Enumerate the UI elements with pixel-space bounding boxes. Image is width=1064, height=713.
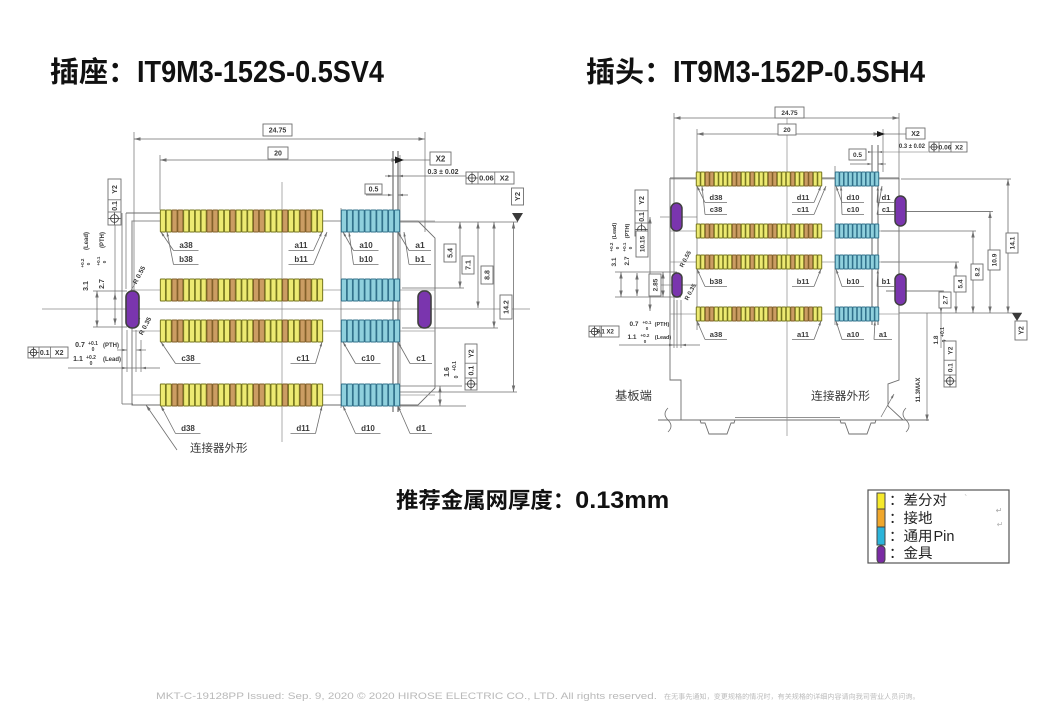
svg-text:0: 0 [454,375,460,378]
svg-text:11.3MAX: 11.3MAX [916,378,922,403]
svg-text:b11: b11 [797,277,810,286]
svg-text:(PTH): (PTH) [625,224,631,239]
svg-text:0.06: 0.06 [479,174,494,183]
svg-text:(PTH): (PTH) [655,322,670,328]
svg-text:b10: b10 [359,255,373,264]
svg-text:1.8: 1.8 [933,335,940,344]
svg-text:b10: b10 [847,277,860,286]
svg-text:R 0.35: R 0.35 [684,283,698,302]
svg-text:+0.2: +0.2 [641,333,650,338]
svg-text:0.1: 0.1 [947,363,954,372]
svg-text:10.15: 10.15 [639,235,646,252]
svg-text:0.1: 0.1 [112,201,119,211]
svg-text:0.5: 0.5 [369,187,379,194]
svg-text:+0.2: +0.2 [80,258,85,267]
svg-text:b1: b1 [882,277,891,286]
svg-text:X2: X2 [55,350,64,357]
svg-text:b1: b1 [415,254,425,264]
svg-text:0.1: 0.1 [597,330,606,336]
svg-text:X2: X2 [955,144,963,151]
svg-text:c1: c1 [416,353,426,363]
svg-text:c10: c10 [847,205,860,214]
svg-text:a38: a38 [710,330,723,339]
svg-text:(Lead): (Lead) [84,232,90,250]
svg-text:Y2: Y2 [112,185,119,194]
svg-text:a11: a11 [295,241,308,250]
svg-text:˞: ˞ [964,492,967,499]
svg-text:Y2: Y2 [513,192,522,201]
svg-text:0.5: 0.5 [853,152,862,159]
svg-text:20: 20 [783,127,791,134]
svg-text:d11: d11 [797,193,810,202]
svg-text:2.7: 2.7 [624,256,631,265]
svg-text:Pin: Pin [934,529,955,545]
svg-text:+0.1: +0.1 [452,361,458,371]
svg-text:R 0.55: R 0.55 [132,265,147,286]
svg-text:b38: b38 [179,255,193,264]
svg-text:3.1: 3.1 [611,257,618,266]
svg-text:d11: d11 [296,424,310,433]
svg-text:R 0.55: R 0.55 [679,250,693,269]
svg-text:0.3 ± 0.02: 0.3 ± 0.02 [899,144,926,150]
svg-text:0.1: 0.1 [639,212,646,222]
svg-text:X2: X2 [911,131,920,138]
svg-text:a1: a1 [415,240,425,250]
svg-text:(Lead): (Lead) [103,357,121,363]
svg-text:(PTH): (PTH) [103,343,119,349]
svg-text:0.06: 0.06 [939,144,952,151]
svg-text:a11: a11 [797,330,809,339]
svg-text:0: 0 [644,339,647,344]
svg-text:X2: X2 [436,154,446,163]
svg-text:0: 0 [646,326,649,331]
svg-text:a10: a10 [359,241,373,250]
svg-text:0: 0 [86,262,91,265]
svg-text:0: 0 [92,347,95,353]
svg-text:2.85: 2.85 [652,278,659,291]
svg-text:+0.1: +0.1 [96,256,101,265]
svg-text:+0.2: +0.2 [609,242,614,251]
svg-text:0: 0 [628,246,633,249]
svg-text:7.1: 7.1 [466,260,473,270]
svg-text:+0.1: +0.1 [622,242,627,251]
svg-text:0.7: 0.7 [75,342,85,349]
svg-text:Y2: Y2 [639,196,646,205]
svg-text:0.1: 0.1 [40,350,50,357]
svg-text:(Lead): (Lead) [655,335,672,341]
svg-text:c38: c38 [181,354,195,363]
svg-text:b11: b11 [294,255,308,264]
svg-text:10.9: 10.9 [991,253,998,266]
svg-text:20: 20 [274,151,282,158]
svg-text:X2: X2 [607,330,615,336]
svg-text:X2: X2 [500,174,509,183]
svg-text:+0.1: +0.1 [643,320,652,325]
svg-text:5.4: 5.4 [448,248,455,258]
svg-text:24.75: 24.75 [781,110,798,117]
svg-text:14.1: 14.1 [1009,236,1016,249]
svg-text:0: 0 [90,361,93,367]
svg-text:d1: d1 [882,193,891,202]
svg-text:↵: ↵ [996,506,1003,515]
svg-text:0: 0 [102,260,107,263]
svg-text:14.2: 14.2 [504,300,511,314]
svg-text:R 0.35: R 0.35 [138,316,153,337]
svg-text:3.1: 3.1 [83,281,90,291]
svg-text:2.7: 2.7 [99,279,106,289]
svg-text:0.3 ± 0.02: 0.3 ± 0.02 [427,169,458,176]
svg-text:1.1: 1.1 [627,334,636,341]
svg-text:d10: d10 [847,193,860,202]
svg-text:+0.1: +0.1 [940,327,946,337]
svg-text:1.6: 1.6 [444,367,451,377]
svg-text:(Lead): (Lead) [612,223,618,240]
svg-text:c11: c11 [297,354,310,363]
svg-text:a10: a10 [847,330,860,339]
svg-text:24.75: 24.75 [269,128,287,135]
svg-text:Y2: Y2 [469,349,476,358]
svg-text:8.8: 8.8 [485,270,492,280]
svg-text:d38: d38 [181,424,195,433]
svg-text:IT9M3-152S-0.5SV4: IT9M3-152S-0.5SV4 [137,54,385,89]
svg-text:0: 0 [615,246,620,249]
svg-text:d1: d1 [416,423,426,433]
svg-text:c38: c38 [710,205,723,214]
svg-text:5.4: 5.4 [957,279,964,288]
svg-text:a1: a1 [879,330,887,339]
svg-text:c1: c1 [882,205,890,214]
svg-text:↵: ↵ [997,520,1004,529]
svg-text:(PTH): (PTH) [100,232,106,248]
svg-text:d38: d38 [710,193,723,202]
svg-text:1.1: 1.1 [73,356,83,363]
svg-text:Y2: Y2 [1019,326,1026,335]
svg-text:0.1: 0.1 [469,366,476,376]
svg-text:Y2: Y2 [947,346,954,354]
svg-text:2.7: 2.7 [942,295,949,304]
svg-text:0.7: 0.7 [629,321,638,328]
svg-text:8.2: 8.2 [974,267,981,276]
svg-text:IT9M3-152P-0.5SH4: IT9M3-152P-0.5SH4 [673,54,926,89]
svg-text:b38: b38 [710,277,723,286]
svg-text:0.13mm: 0.13mm [575,487,669,514]
svg-text:c11: c11 [797,205,809,214]
svg-text:d10: d10 [361,424,375,433]
svg-text:c10: c10 [361,354,375,363]
svg-text:MKT-C-19128PP Issued: Sep. 9: MKT-C-19128PP Issued: Sep. 9, 2020 © 202… [156,691,657,702]
svg-text:a38: a38 [179,241,193,250]
